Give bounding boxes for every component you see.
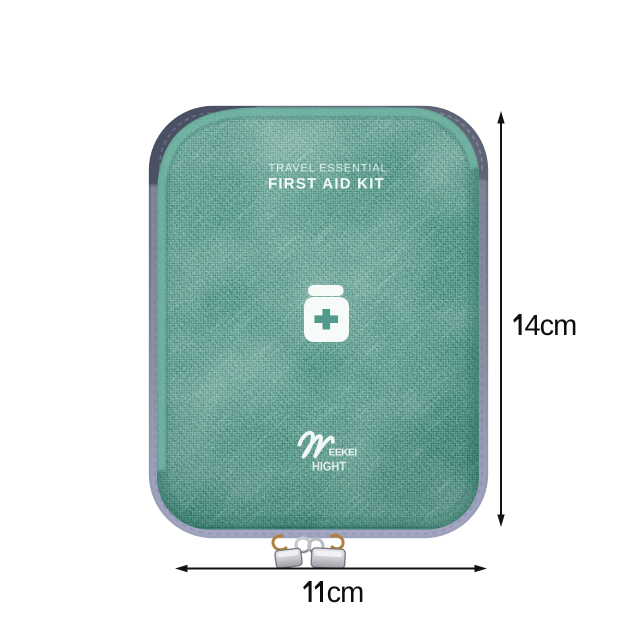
svg-text:EEKEI: EEKEI [329, 448, 358, 459]
svg-text:FIRST AID KIT: FIRST AID KIT [268, 176, 385, 193]
svg-text:cm: cm [327, 577, 364, 609]
svg-text:TRAVEL ESSENTIAL: TRAVEL ESSENTIAL [269, 163, 388, 175]
svg-text:HIGHT: HIGHT [312, 460, 346, 474]
svg-text:4cm: 4cm [525, 310, 577, 342]
